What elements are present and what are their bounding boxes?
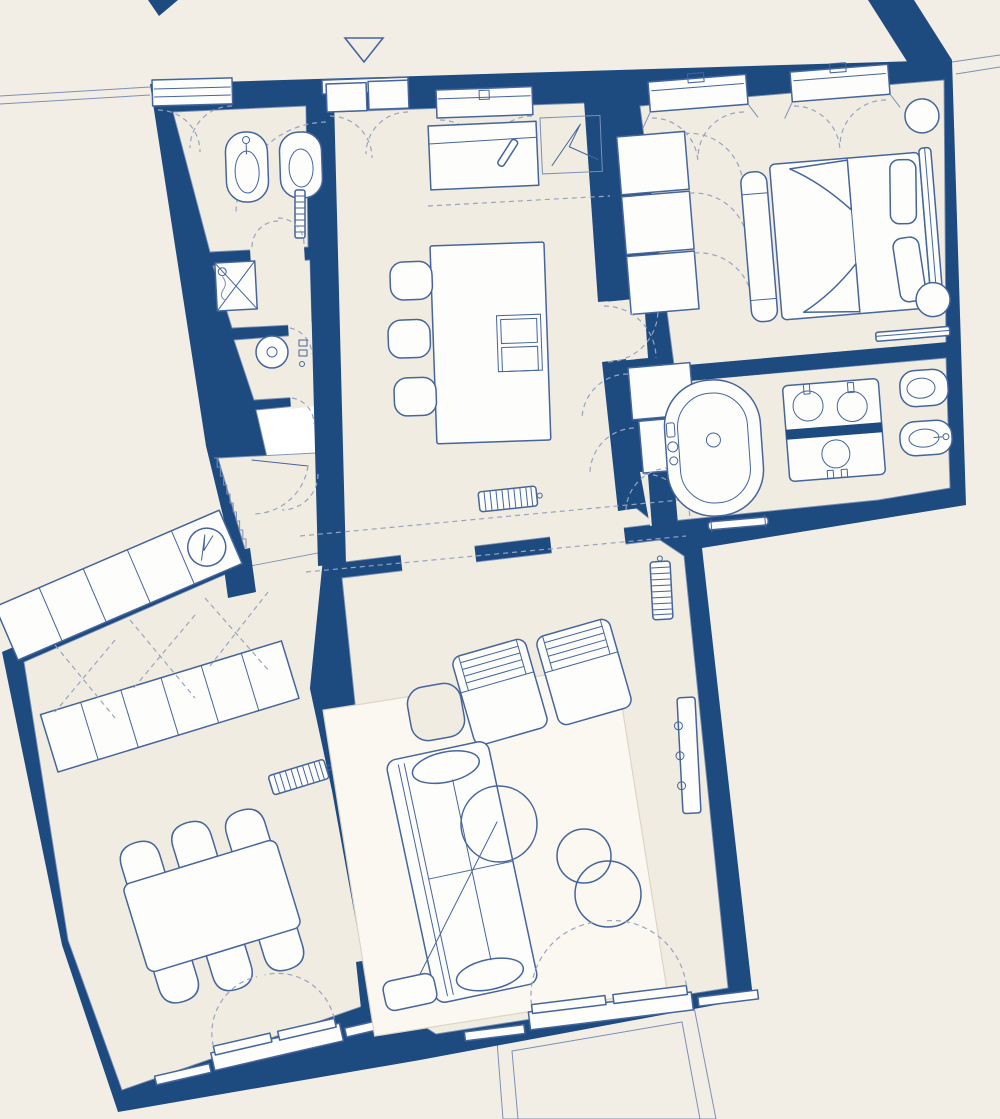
toilet	[279, 131, 323, 198]
bar-stool-1	[390, 261, 433, 300]
bathroom-toilet	[899, 368, 949, 407]
entry-console	[428, 121, 539, 190]
opening-kitchen-living-1	[398, 524, 478, 586]
pillow-1	[890, 160, 917, 224]
wardrobe-cell-3	[626, 251, 699, 314]
entrance-door	[322, 77, 409, 112]
opening-kitchen-living-2	[548, 513, 628, 572]
opening-laundry-storage	[290, 391, 316, 409]
bathroom-bidet	[899, 419, 953, 457]
wc-window	[152, 78, 233, 106]
wardrobe-cell-2	[622, 191, 695, 254]
square-side-table	[405, 681, 468, 744]
opening-shower-laundry	[288, 322, 313, 340]
bar-stool-3	[394, 377, 437, 416]
vanity-double-basin	[782, 378, 885, 481]
wall-stub-top-right	[868, 0, 952, 63]
bar-stool-2	[388, 319, 431, 358]
wardrobe-cell-1	[617, 131, 690, 194]
washing-machine	[256, 336, 288, 368]
kitchen-island	[385, 242, 551, 445]
shower-tray	[215, 261, 257, 311]
wall-stub-top-left	[148, 0, 178, 16]
opening-wc-door	[250, 246, 305, 266]
bidet	[225, 131, 269, 202]
freestanding-bathtub	[661, 377, 766, 519]
wc-towel-radiator	[295, 190, 305, 238]
floor-plan-page	[0, 0, 1000, 1119]
kitchen-window	[436, 87, 533, 118]
entrance-marker-triangle	[345, 38, 383, 62]
living-radiator	[650, 555, 673, 619]
floor-plan-canvas	[0, 0, 1000, 1119]
